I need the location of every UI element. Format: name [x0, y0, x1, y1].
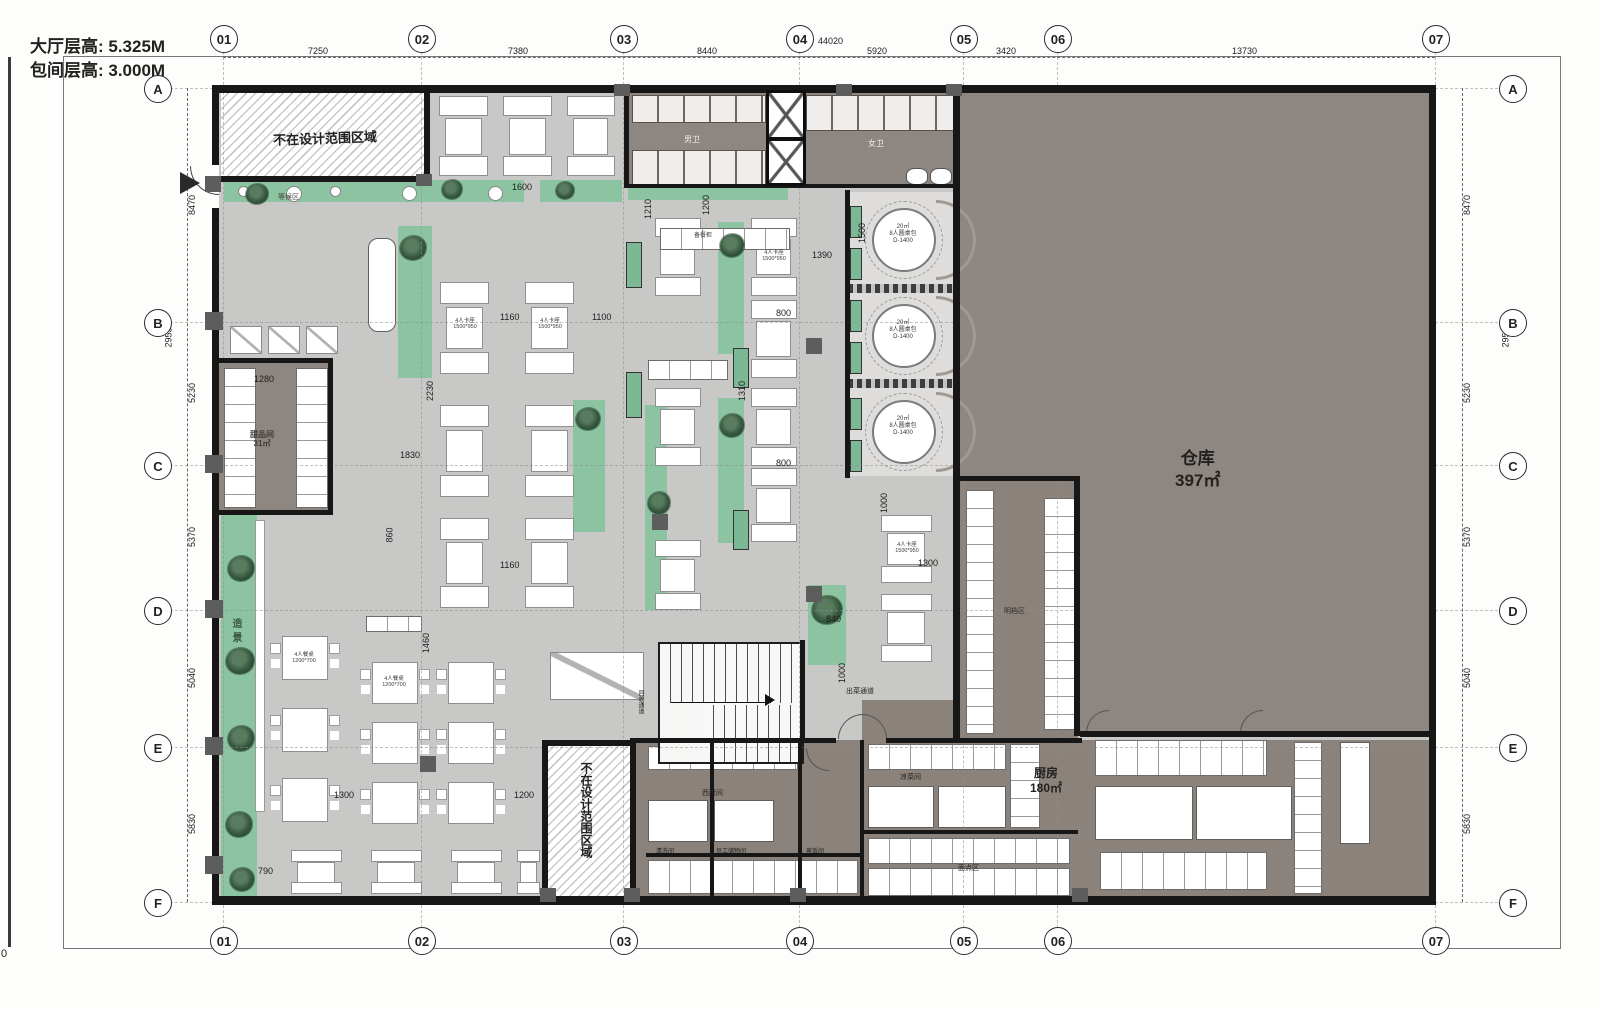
service-station — [850, 398, 862, 430]
wall-room-divider — [798, 742, 802, 896]
cashier-counter — [550, 652, 644, 700]
plant — [228, 556, 254, 581]
table — [372, 722, 418, 764]
private-room-label: 20㎡ 8人圆桌包 D-1400 — [874, 320, 932, 341]
grid-bubble-col: 05 — [950, 25, 978, 53]
dim-interior: 1300 — [918, 558, 938, 568]
booth — [748, 468, 800, 542]
dim-top: 13730 — [1232, 46, 1257, 56]
table — [282, 778, 328, 822]
column-pier — [540, 888, 556, 902]
host-counter — [368, 238, 396, 332]
grid-bubble-col: 01 — [210, 25, 238, 53]
booth — [516, 850, 540, 894]
dim-interior: 800 — [776, 458, 791, 468]
dim-right: 5830 — [1462, 814, 1472, 834]
top-dimension-line — [223, 57, 1435, 58]
kitchen-equipment-row — [1095, 740, 1267, 776]
private-room-label: 20㎡ 8人圆桌包 D-1400 — [874, 416, 932, 437]
west-kitchen-equipment — [648, 800, 708, 842]
booth — [564, 96, 618, 176]
dim-interior: 1310 — [737, 381, 747, 401]
grid-line-row — [170, 322, 1498, 323]
kitchen-area: 180㎡ — [1030, 781, 1062, 795]
grid-line-col — [1057, 52, 1058, 948]
wall-hatch-bottom — [215, 176, 429, 182]
title-hall-height: 大厅层高: 5.325M — [30, 32, 165, 57]
grid-bubble-row: F — [144, 889, 172, 917]
dim-interior: 2230 — [425, 381, 435, 401]
grid-bubble-row: D — [144, 597, 172, 625]
dim-interior: 800 — [776, 308, 791, 318]
private-room-partition — [848, 379, 955, 388]
dim-interior: 860 — [385, 527, 395, 542]
private-room-partition — [848, 284, 955, 293]
dim-interior: 840 — [826, 614, 841, 624]
table — [448, 662, 494, 704]
booth — [748, 300, 800, 378]
service-station — [626, 372, 642, 418]
kitchen-name: 厨房 — [1034, 766, 1058, 780]
grid-bubble-row: A — [144, 75, 172, 103]
private-room-diameter: D-1400 — [893, 238, 913, 244]
booth — [652, 540, 704, 610]
table — [282, 708, 328, 752]
table-size: 1200*700 — [292, 658, 316, 664]
private-room-type: 8人圆桌包 — [889, 327, 916, 333]
dim-right: 8470 — [1462, 195, 1472, 215]
column-pier — [420, 756, 436, 772]
table-label: 4人餐桌 1200*700 — [282, 652, 326, 665]
service-counter — [648, 360, 728, 380]
column-pier — [652, 514, 668, 530]
private-room-size: 20㎡ — [897, 320, 910, 326]
grid-bubble-row: E — [1499, 734, 1527, 762]
wall-open-counter-top — [953, 476, 1080, 481]
table — [372, 782, 418, 824]
dim-top: 7250 — [308, 46, 328, 56]
dim-left: 5370 — [187, 527, 197, 547]
column-pier — [624, 888, 640, 902]
wall-room-divider-h — [646, 853, 862, 857]
dim-interior: 1000 — [837, 663, 847, 683]
grid-line-col — [421, 52, 422, 948]
booth — [748, 388, 800, 466]
booth-label: 4人卡座 1500*950 — [750, 250, 798, 263]
wall-stair-side — [800, 640, 805, 740]
female-wc-label: 女卫 — [868, 138, 884, 149]
grid-bubble-col: 06 — [1044, 927, 1072, 955]
wall-hatch-right — [424, 88, 430, 180]
wall-left-upper — [212, 85, 219, 165]
plant — [556, 182, 574, 199]
elevator-shaft — [766, 90, 806, 140]
column-pier — [790, 888, 806, 902]
booth — [437, 518, 493, 608]
grid-bubble-row: A — [1499, 75, 1527, 103]
booth-size: 1500*950 — [762, 256, 786, 262]
grid-bubble-col: 04 — [786, 927, 814, 955]
private-room-type: 8人圆桌包 — [889, 231, 916, 237]
wall-room-divider — [860, 740, 864, 897]
column-pier — [806, 586, 822, 602]
column-pier — [205, 856, 223, 874]
wall-top — [212, 85, 1436, 93]
grid-bubble-row: E — [144, 734, 172, 762]
landscape-label: 造景 — [228, 618, 243, 646]
column-pier — [1072, 888, 1088, 902]
booth-size: 1500*950 — [538, 324, 562, 330]
dim-left: 8470 — [187, 195, 197, 215]
kitchen-equipment-column — [1294, 742, 1322, 894]
plant — [246, 184, 268, 204]
column-pier — [205, 600, 223, 618]
stool — [330, 186, 341, 197]
grid-line-row — [170, 465, 1498, 466]
wall-dessert-bottom — [215, 510, 333, 515]
dessert-area: 31㎡ — [254, 439, 271, 448]
service-station — [850, 440, 862, 472]
plant — [226, 812, 252, 837]
stair-treads-upper — [660, 644, 802, 703]
dim-right: 5230 — [1462, 383, 1472, 403]
entrance-arrow — [180, 172, 200, 194]
open-counter-cabinets-left — [966, 490, 994, 734]
dim-interior: 1100 — [592, 312, 611, 322]
grid-line-row — [170, 610, 1498, 611]
booth-type: 4人卡座 — [764, 250, 784, 256]
stool — [488, 186, 503, 201]
wall-right — [1429, 85, 1436, 905]
warehouse-name: 仓库 — [1181, 449, 1215, 468]
sheet-edge-line — [8, 57, 11, 947]
grid-bubble-col: 06 — [1044, 25, 1072, 53]
grid-line-row — [170, 747, 1498, 748]
grid-bubble-row: F — [1499, 889, 1527, 917]
kitchen-equipment — [1095, 786, 1193, 840]
dim-interior: 1200 — [701, 195, 711, 215]
plant — [720, 414, 744, 437]
wash-room-label: 清洗间 — [656, 846, 674, 855]
plant — [400, 236, 426, 260]
grid-bubble-row: C — [1499, 452, 1527, 480]
grid-bubble-row: B — [144, 309, 172, 337]
title-room-height: 包间层高: 3.000M — [30, 56, 165, 81]
dessert-cabinets-right — [296, 368, 328, 508]
private-room-diameter: D-1400 — [893, 334, 913, 340]
dim-right: 5370 — [1462, 527, 1472, 547]
dim-interior: 1390 — [812, 250, 832, 260]
private-room-type: 8人圆桌包 — [889, 423, 916, 429]
table — [448, 722, 494, 764]
table-label: 4人餐桌 1200*700 — [372, 676, 416, 689]
corner-mark: 0 — [1, 948, 7, 960]
grid-bubble-col: 05 — [950, 927, 978, 955]
wall-dessert-right — [328, 358, 333, 515]
grid-bubble-col: 02 — [408, 25, 436, 53]
table-type: 4人餐桌 — [384, 676, 404, 682]
wall-privates-left — [845, 190, 850, 478]
cold-dish-equipment — [938, 786, 1006, 828]
private-room-size: 20㎡ — [897, 416, 910, 422]
dim-top: 3420 — [996, 46, 1016, 56]
booth — [652, 388, 704, 466]
dim-left: 5830 — [187, 814, 197, 834]
booth-type: 4人卡座 — [540, 318, 560, 324]
kitchen-label: 厨房 180㎡ — [1030, 766, 1062, 796]
bench — [255, 520, 265, 812]
west-kitchen-equipment — [714, 800, 774, 842]
service-table — [306, 326, 338, 354]
male-wc-stalls — [632, 150, 766, 186]
dim-top-total: 44020 — [818, 36, 843, 46]
kitchen-equipment-row — [1100, 852, 1267, 890]
grid-bubble-row: C — [144, 452, 172, 480]
column-pier — [946, 84, 962, 96]
wall-bottom — [212, 896, 1436, 905]
table — [448, 782, 494, 824]
booth — [448, 850, 506, 894]
grid-line-col — [963, 52, 964, 948]
column-pier — [205, 312, 223, 330]
plant — [720, 234, 744, 257]
service-table — [230, 326, 262, 354]
cold-dish-equipment — [868, 786, 934, 828]
booth-label: 4人卡座 1500*950 — [525, 318, 575, 331]
column-pier — [836, 84, 852, 96]
dessert-room-label: 甜品间 31㎡ — [250, 430, 274, 448]
stair-arrow — [671, 702, 770, 703]
rice-room-label: 蒸饭间 — [806, 846, 824, 855]
wall-service-band-top-left — [630, 738, 836, 743]
wall-cold-dish-bottom — [864, 830, 1078, 834]
plant — [442, 180, 462, 199]
booth — [522, 405, 578, 497]
dim-left: 5230 — [187, 383, 197, 403]
dim-right: 5040 — [1462, 668, 1472, 688]
out-of-scope-label-bottom: 不在设计范围区域 — [578, 762, 595, 858]
booth — [878, 594, 936, 662]
booth-size: 1500*950 — [895, 548, 919, 554]
kitchen-equipment — [1196, 786, 1292, 840]
private-room-diameter: D-1400 — [893, 430, 913, 436]
stool — [402, 186, 417, 201]
stair-arrow-head — [765, 694, 775, 706]
booth-label: 4人卡座 1500*950 — [440, 318, 490, 331]
wall-open-counter-right — [1074, 480, 1080, 736]
table-type: 4人餐桌 — [294, 652, 314, 658]
waiting-area-label: 等候区 — [278, 192, 299, 202]
waiting-counter — [540, 180, 622, 202]
column-pier — [205, 176, 221, 192]
warehouse-area: 397㎡ — [1175, 471, 1220, 490]
dim-interior: 1460 — [421, 633, 431, 653]
male-wc-urinals — [632, 95, 766, 123]
grid-line-col — [223, 52, 224, 948]
male-wc-label: 男卫 — [684, 134, 700, 145]
warehouse-label: 仓库 397㎡ — [1175, 448, 1220, 492]
west-kitchen-label: 西厨间 — [702, 788, 723, 798]
booth — [522, 518, 578, 608]
pastry-equipment — [868, 838, 1070, 864]
private-room-label: 20㎡ 8人圆桌包 D-1400 — [874, 224, 932, 245]
service-station — [626, 242, 642, 288]
elevator-shaft — [766, 138, 806, 186]
counter-label: 备餐柜 — [694, 233, 712, 240]
service-table — [268, 326, 300, 354]
floor-plan-sheet: 0 大厅层高: 5.325M 包间层高: 3.000M 01 02 03 04 … — [0, 0, 1600, 1009]
service-station — [733, 510, 749, 550]
dim-interior: 1500 — [857, 223, 867, 243]
column-pier — [614, 84, 630, 96]
dim-interior: 1280 — [254, 374, 274, 384]
service-counter — [366, 616, 422, 632]
grid-bubble-col: 01 — [210, 927, 238, 955]
booth — [436, 96, 492, 176]
grid-bubble-col: 02 — [408, 927, 436, 955]
grid-bubble-col: 04 — [786, 25, 814, 53]
dim-top: 8440 — [697, 46, 717, 56]
dim-interior: 790 — [258, 866, 273, 876]
column-pier — [205, 455, 223, 473]
private-room-size: 20㎡ — [897, 224, 910, 230]
female-wc-stalls — [806, 95, 956, 131]
staff-storage-label: 员工储物间 — [716, 846, 746, 855]
grid-bubble-col: 07 — [1422, 25, 1450, 53]
kitchen-pass-counter — [1340, 742, 1370, 844]
grid-bubble-col: 03 — [610, 927, 638, 955]
column-pier — [806, 338, 822, 354]
dish-corridor-label: 出菜通道 — [846, 686, 874, 696]
dim-top: 7380 — [508, 46, 528, 56]
service-station — [850, 300, 862, 332]
dim-interior: 1200 — [514, 790, 534, 800]
booth — [500, 96, 556, 176]
booth-type: 4人卡座 — [455, 318, 475, 324]
cold-dish-label: 凉菜间 — [900, 772, 921, 782]
wall-dessert-top — [215, 358, 333, 363]
booth — [437, 405, 493, 497]
booth-label: 4人卡座 1500*950 — [880, 542, 934, 555]
plant — [230, 868, 254, 891]
plant — [648, 492, 670, 514]
dim-interior: 1160 — [500, 312, 519, 322]
booth — [288, 850, 346, 894]
grid-bubble-row: B — [1499, 309, 1527, 337]
dim-interior: 1160 — [500, 560, 519, 570]
wall-service-band-top-right — [886, 738, 1082, 743]
wall-hatch2-top — [542, 740, 636, 746]
dim-left: 5040 — [187, 668, 197, 688]
bottom-room-equipment — [648, 860, 858, 894]
grid-bubble-col: 03 — [610, 25, 638, 53]
dim-interior: 1600 — [512, 182, 532, 192]
wall-warehouse-kitchen — [1080, 731, 1436, 737]
pastry-label: 面点区 — [958, 863, 979, 873]
dim-top: 5920 — [867, 46, 887, 56]
column-pier — [416, 174, 432, 186]
dim-interior: 1000 — [879, 493, 889, 513]
table-size: 1200*700 — [382, 682, 406, 688]
booth-size: 1500*950 — [453, 324, 477, 330]
booth-type: 4人卡座 — [897, 542, 917, 548]
grid-bubble-row: D — [1499, 597, 1527, 625]
open-counter-cabinets-right — [1044, 498, 1076, 730]
booth — [368, 850, 426, 894]
service-station — [850, 248, 862, 280]
open-counter-label: 明档区 — [1004, 606, 1025, 616]
dim-interior: 1210 — [643, 199, 653, 219]
stair-treads-lower — [703, 705, 802, 762]
waiting-bench-planter — [224, 180, 524, 202]
dessert-name: 甜品间 — [250, 430, 274, 439]
plant — [226, 648, 254, 674]
wc-sink — [930, 168, 952, 185]
plant — [576, 408, 600, 430]
wall-room-divider — [710, 742, 714, 896]
column-pier — [205, 737, 223, 755]
recycle-corridor-label: 回收通道 — [636, 690, 645, 714]
grid-bubble-col: 07 — [1422, 927, 1450, 955]
wall-wc-left — [624, 88, 629, 188]
wall-hatch2-right — [630, 740, 636, 898]
staircase — [658, 642, 804, 764]
dim-interior: 1830 — [400, 450, 420, 460]
dim-interior: 1300 — [334, 790, 354, 800]
wc-sink — [906, 168, 928, 185]
service-station — [850, 342, 862, 374]
wall-hatch2-left — [542, 740, 548, 898]
